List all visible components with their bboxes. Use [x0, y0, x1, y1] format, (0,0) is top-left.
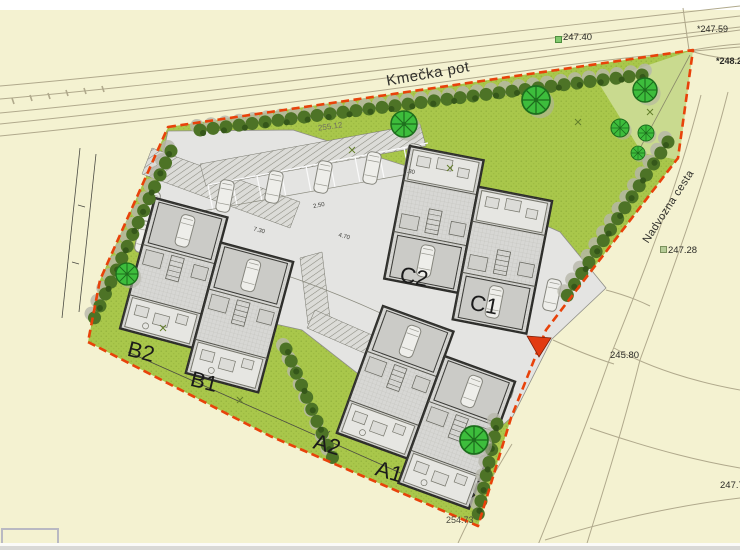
elevation-label-247-7: 247.7 [720, 481, 740, 491]
building-label-b1: B1 [188, 368, 219, 396]
elevation-label-247-28: 247.28 [668, 246, 697, 256]
elevation-label-245-80: 245.80 [610, 351, 639, 361]
building-label-b2: B2 [125, 338, 156, 366]
building-label-c2: C2 [398, 264, 430, 291]
benchmark-square-icon [660, 246, 667, 253]
benchmark-square-icon [555, 36, 562, 43]
site-plan-page: Kmečka pot Nadvozna cesta B2 B1 A2 A1 C2… [0, 0, 740, 550]
building-label-c1: C1 [468, 292, 500, 319]
bottom-band-gray [0, 546, 740, 550]
elevation-label-254-73: 254.73 [446, 516, 474, 525]
bottom-band-light [0, 543, 740, 546]
elevation-label-247-40: 247.40 [563, 33, 592, 43]
site-plan-canvas [0, 0, 740, 550]
elevation-label-248-2: *248.2 [716, 57, 740, 66]
elevation-label-247-59: *247.59 [697, 25, 728, 34]
